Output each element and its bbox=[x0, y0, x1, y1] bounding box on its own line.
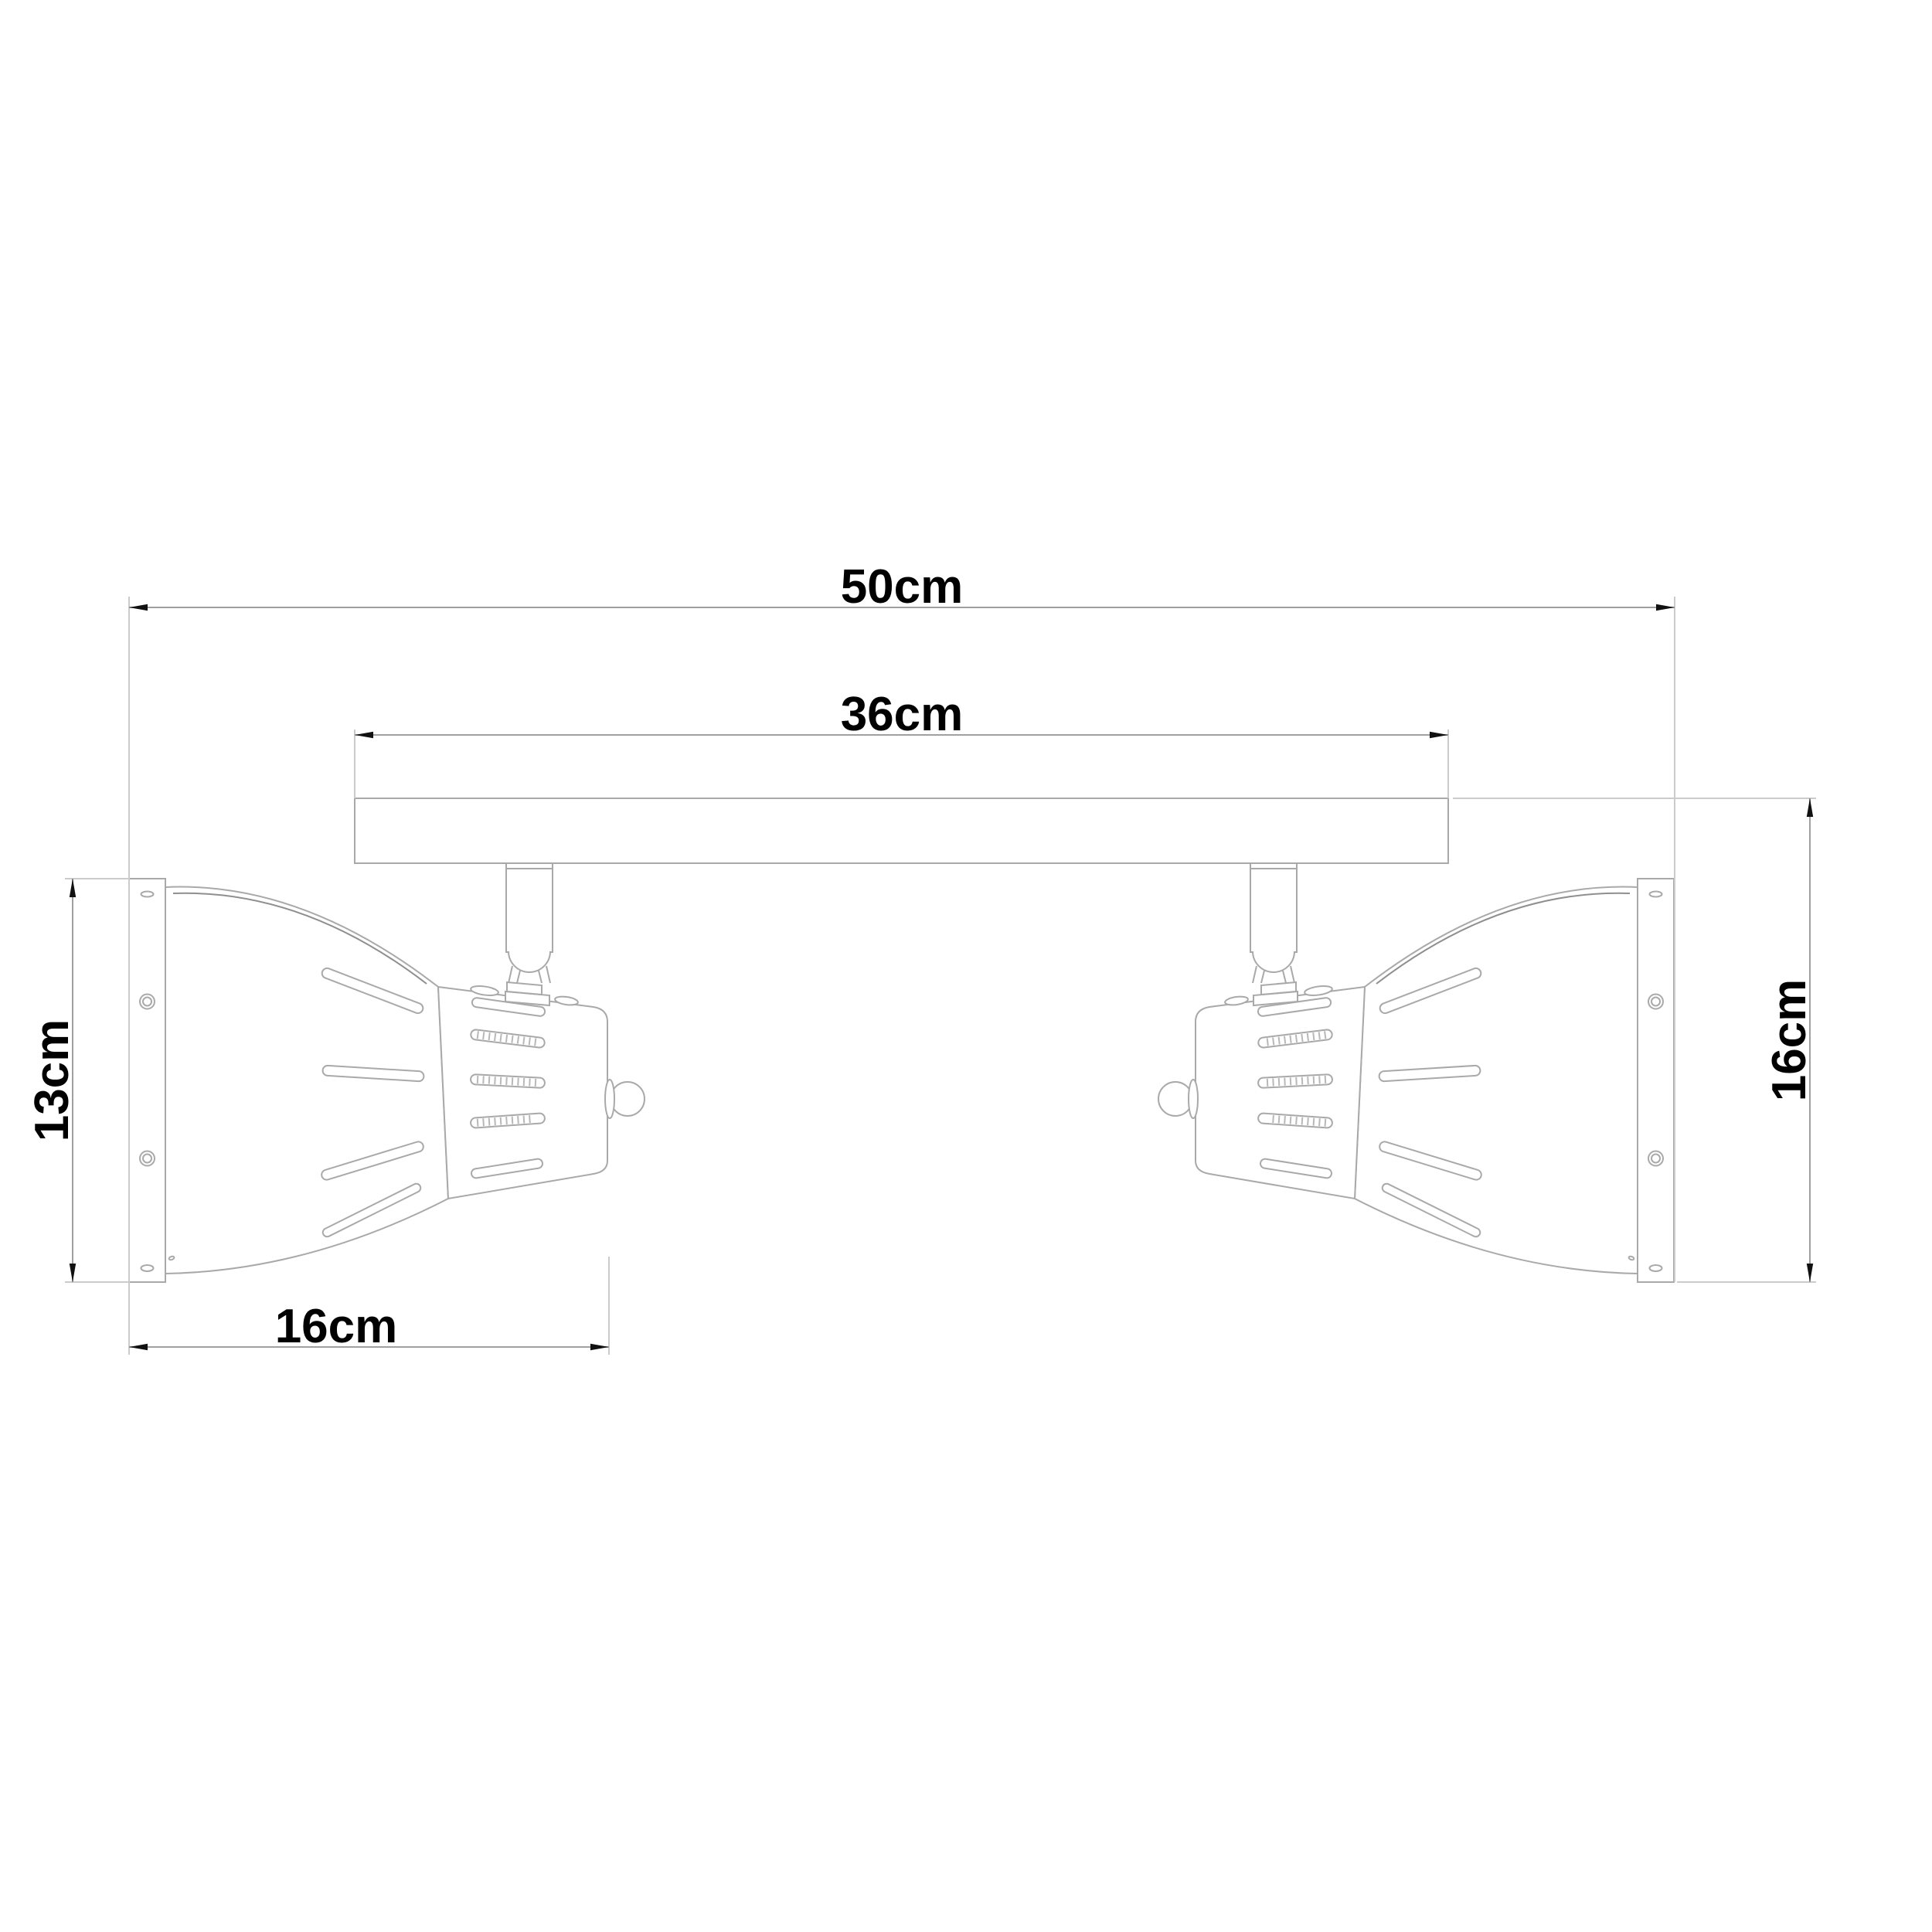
dimension-label-overall-width: 50cm bbox=[841, 560, 964, 614]
dimension-label-bar-width: 36cm bbox=[841, 688, 964, 741]
left-spotlight-head bbox=[129, 863, 645, 1282]
right-spotlight-head bbox=[1158, 863, 1674, 1282]
dimension-drawing-page: 50cm 36cm 13cm 16cm 16cm bbox=[0, 0, 1932, 1932]
dimension-label-head-depth: 16cm bbox=[275, 1300, 398, 1353]
dimension-head-depth: 16cm bbox=[129, 1300, 609, 1353]
dimension-label-fixture-height: 16cm bbox=[1763, 979, 1816, 1102]
technical-drawing: 50cm 36cm 13cm 16cm 16cm bbox=[0, 0, 1932, 1932]
dimension-overall-width: 50cm bbox=[129, 560, 1675, 614]
dimension-label-shade-height: 13cm bbox=[26, 1019, 79, 1142]
dimension-shade-height: 13cm bbox=[26, 879, 79, 1282]
dimension-fixture-height: 16cm bbox=[1763, 798, 1816, 1282]
mounting-bar bbox=[355, 798, 1448, 863]
dimension-bar-width: 36cm bbox=[355, 688, 1448, 741]
